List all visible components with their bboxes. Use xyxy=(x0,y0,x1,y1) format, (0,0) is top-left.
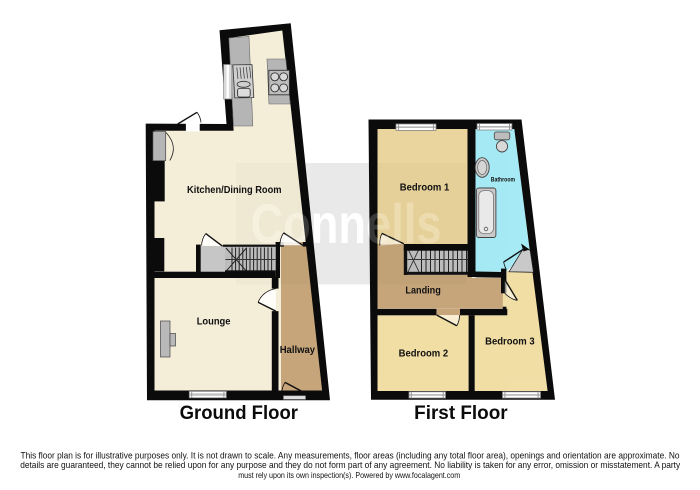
svg-text:Kitchen/Dining Room: Kitchen/Dining Room xyxy=(187,185,282,196)
svg-text:Bedroom 2: Bedroom 2 xyxy=(399,348,449,359)
svg-text:Bathroom: Bathroom xyxy=(491,176,515,183)
svg-text:First Floor: First Floor xyxy=(414,403,508,424)
svg-text:Connells: Connells xyxy=(251,192,442,255)
svg-text:Bedroom 3: Bedroom 3 xyxy=(485,337,535,348)
svg-text:Landing: Landing xyxy=(405,286,440,297)
svg-text:must rely upon its own inspect: must rely upon its own inspection(s). Po… xyxy=(238,471,460,480)
svg-text:details are guaranteed, they c: details are guaranteed, they cannot be r… xyxy=(20,459,680,470)
svg-text:Hallway: Hallway xyxy=(280,345,316,356)
svg-text:Ground Floor: Ground Floor xyxy=(180,403,299,424)
svg-text:Bedroom 1: Bedroom 1 xyxy=(400,182,450,193)
svg-text:Lounge: Lounge xyxy=(197,316,231,327)
